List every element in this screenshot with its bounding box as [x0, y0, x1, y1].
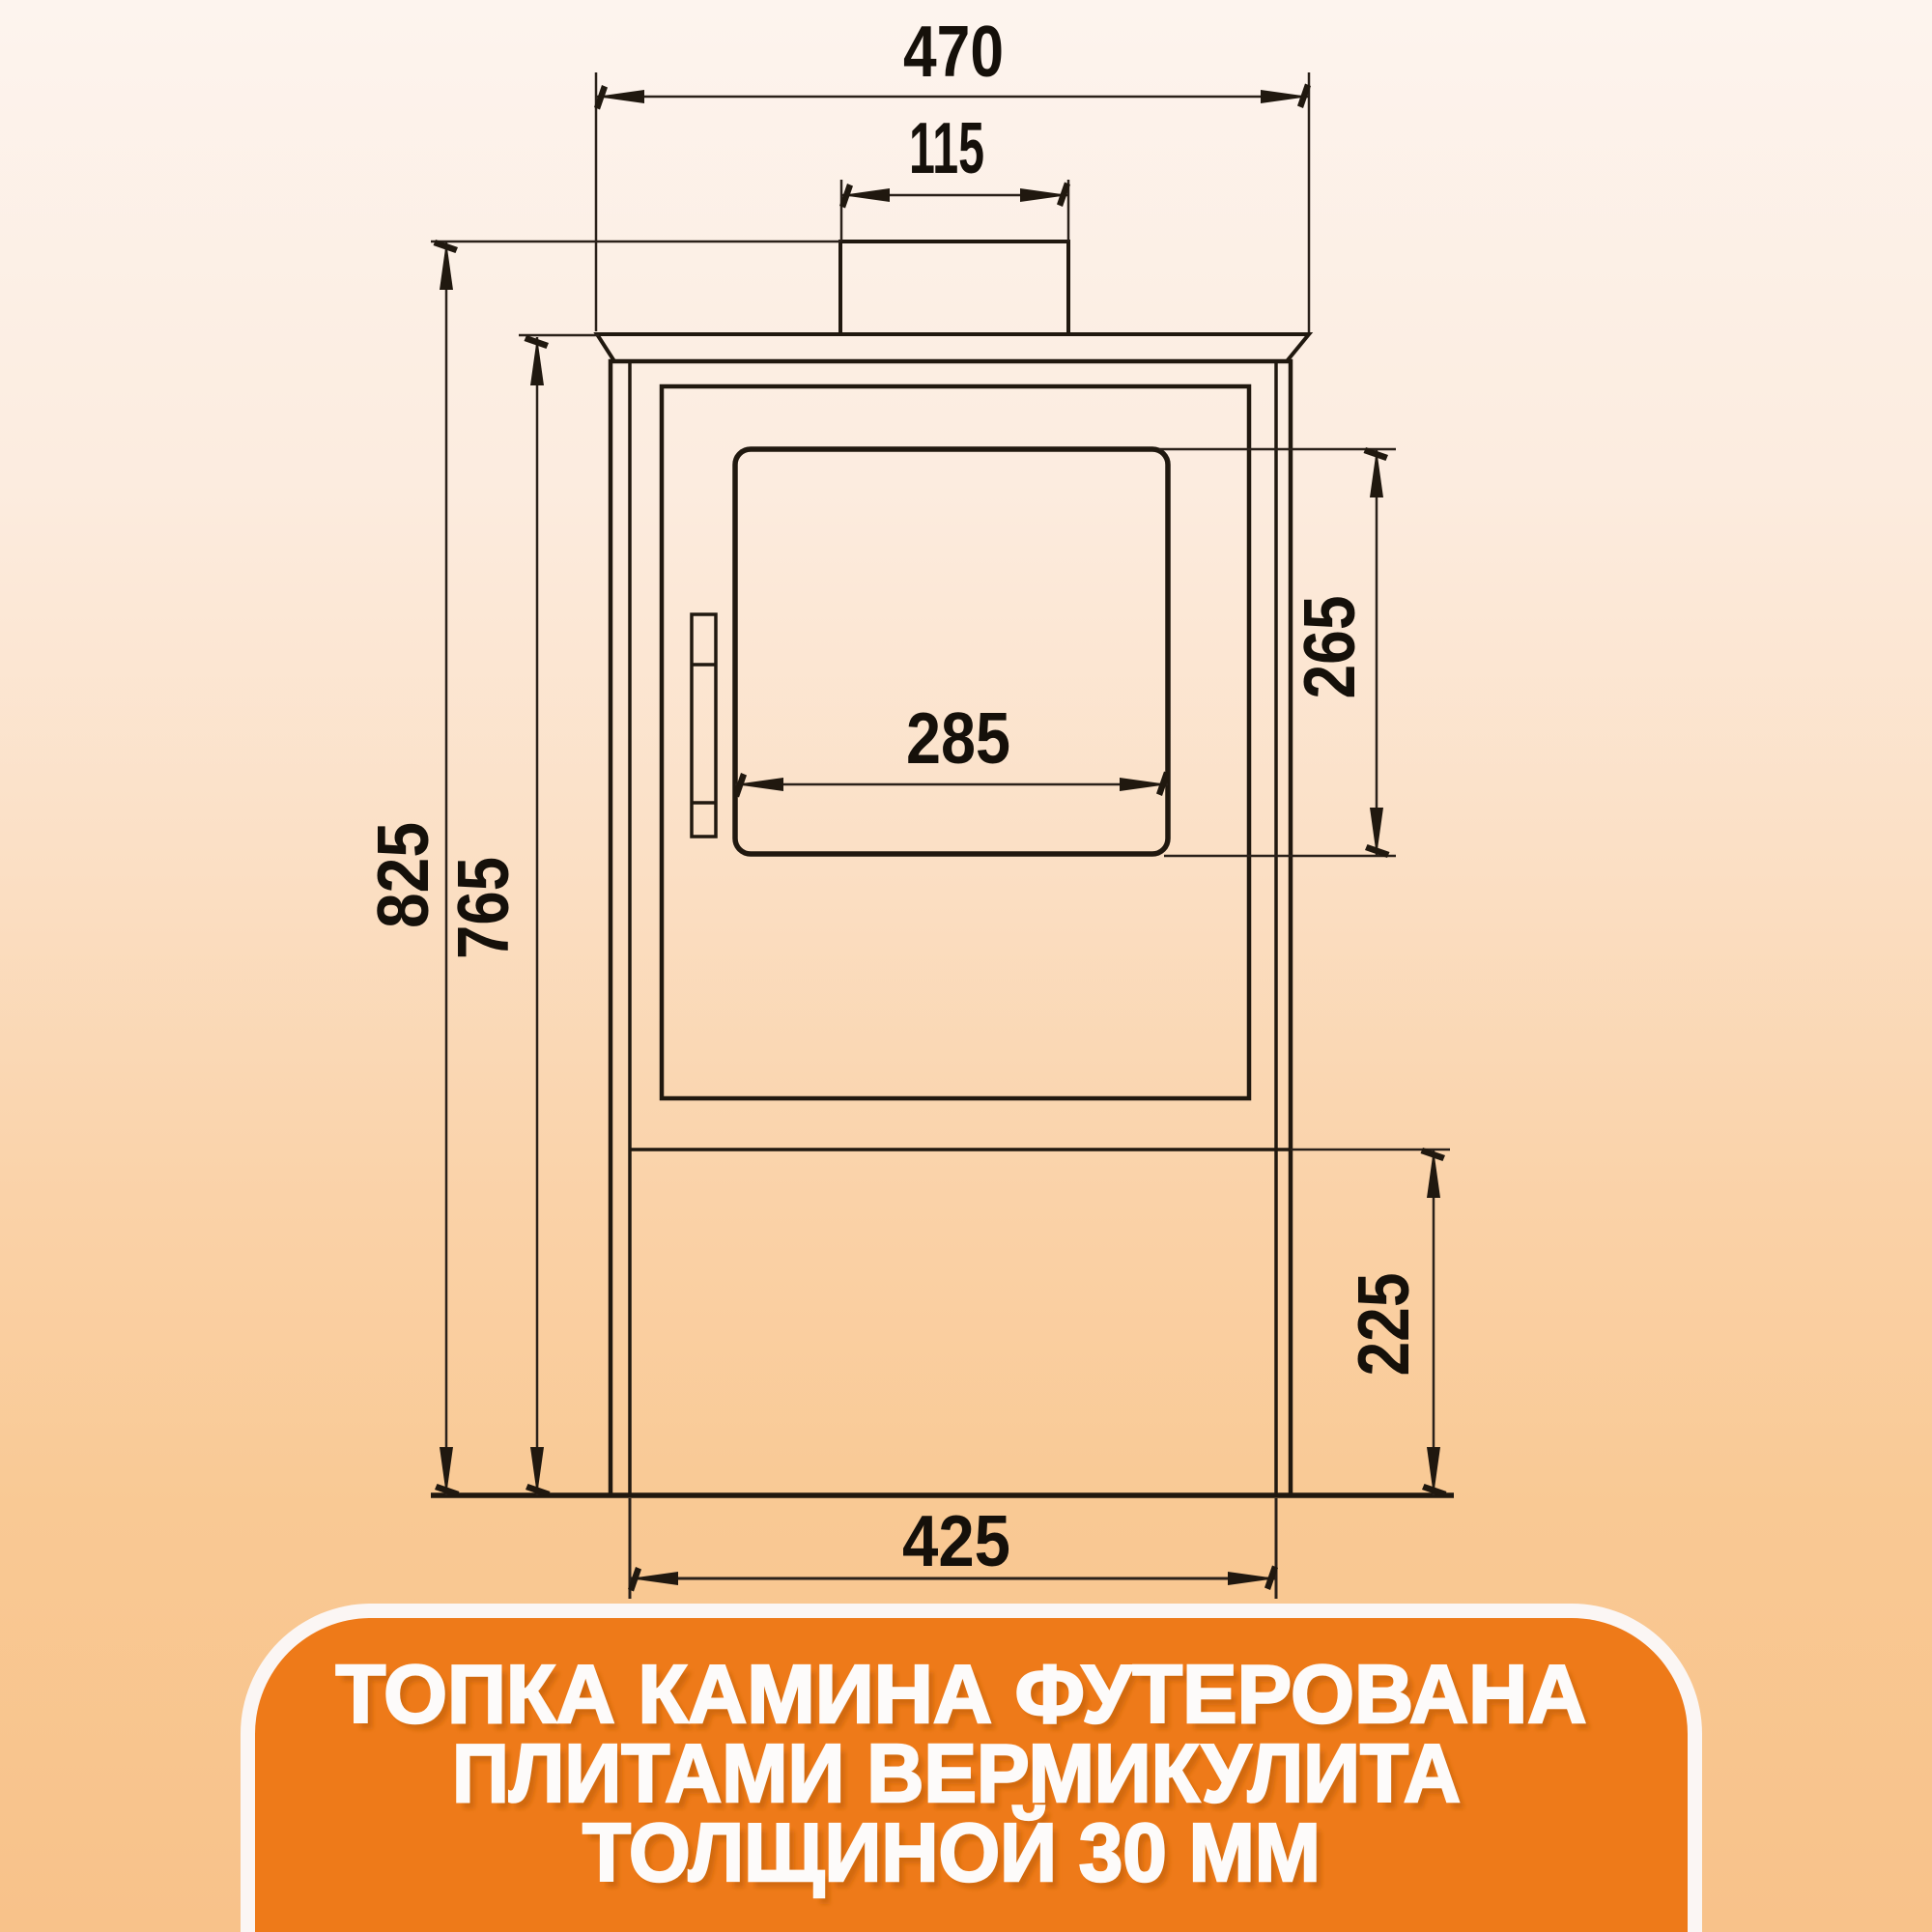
svg-text:115: 115: [909, 107, 984, 188]
svg-text:ТОПКА КАМИНА ФУТЕРОВАНА: ТОПКА КАМИНА ФУТЕРОВАНА: [336, 1649, 1587, 1741]
svg-text:825: 825: [362, 822, 443, 928]
svg-text:285: 285: [906, 697, 1010, 779]
svg-text:470: 470: [903, 11, 1004, 92]
svg-text:765: 765: [442, 857, 524, 959]
svg-text:425: 425: [902, 1500, 1010, 1581]
svg-text:225: 225: [1343, 1273, 1424, 1377]
svg-text:265: 265: [1289, 596, 1370, 699]
svg-text:ТОЛЩИНОЙ 30 ММ: ТОЛЩИНОЙ 30 ММ: [582, 1805, 1321, 1899]
svg-text:ПЛИТАМИ ВЕРМИКУЛИТА: ПЛИТАМИ ВЕРМИКУЛИТА: [452, 1728, 1461, 1820]
